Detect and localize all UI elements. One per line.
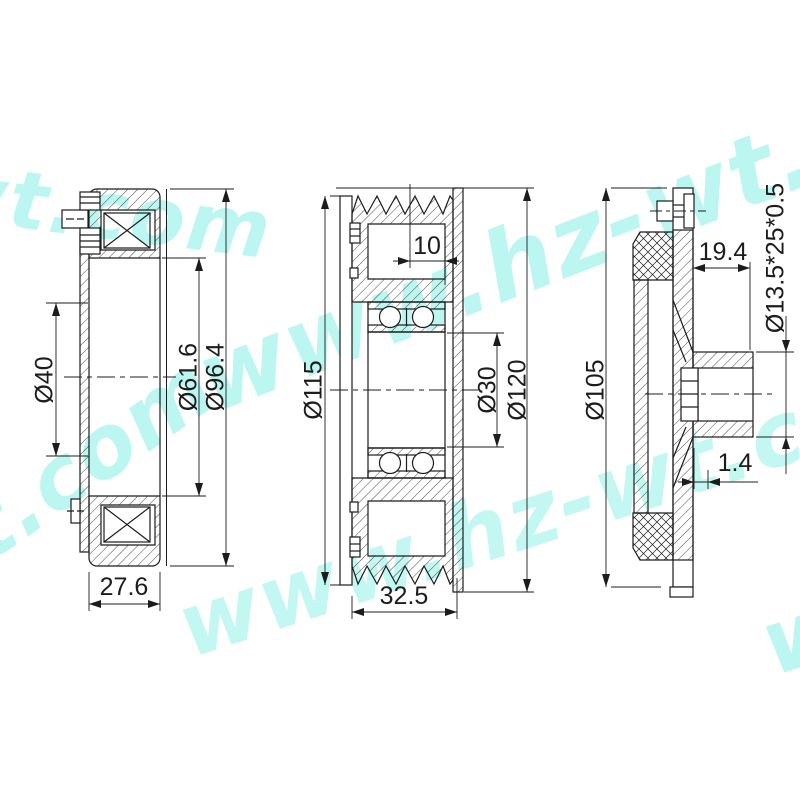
dim-label-spline: Ø13.5*25*0.5 xyxy=(762,183,790,333)
dim-label-1-4: 1.4 xyxy=(718,449,753,477)
bearing-top xyxy=(368,302,445,332)
dim-o40: Ø40 xyxy=(31,303,88,456)
dim-label-o40: Ø40 xyxy=(31,356,59,403)
rubber-damper-bottom xyxy=(633,513,673,560)
dim-label-32-5: 32.5 xyxy=(380,582,429,610)
dim-19-4: 19.4 xyxy=(693,230,750,350)
dim-32-5: 32.5 xyxy=(352,578,457,619)
pulley-dimensions: 10 Ø115 Ø30 Ø120 xyxy=(300,184,534,619)
technical-drawing: Ø40 Ø61.6 Ø96.4 27.6 xyxy=(0,0,800,800)
disc-rim-step xyxy=(670,587,693,597)
coil-winding-top xyxy=(104,213,150,248)
dim-label-o115: Ø115 xyxy=(300,360,328,419)
rubber-damper-top xyxy=(633,232,673,280)
dim-label-o61-6: Ø61.6 xyxy=(175,343,203,411)
coil-section-view xyxy=(62,189,176,566)
dim-label-o105: Ø105 xyxy=(582,359,610,420)
pulley-flange xyxy=(340,196,352,585)
dim-spline: Ø13.5*25*0.5 xyxy=(756,183,794,474)
dim-label-o120: Ø120 xyxy=(504,359,532,420)
dim-label-27-6: 27.6 xyxy=(100,573,149,601)
dim-label-10: 10 xyxy=(413,232,441,260)
spline-bore xyxy=(681,368,698,421)
dim-27-6: 27.6 xyxy=(89,572,160,611)
dim-label-19-4: 19.4 xyxy=(699,238,748,266)
pulley-section-view xyxy=(330,188,478,592)
dim-label-o96-4: Ø96.4 xyxy=(202,343,230,411)
coil-mount-plate xyxy=(80,234,89,552)
bearing-bottom xyxy=(368,448,445,478)
spring-plate xyxy=(634,280,648,513)
pulley-rim-bottom xyxy=(352,478,453,584)
dim-label-o30: Ø30 xyxy=(474,366,502,413)
coil-winding-bottom xyxy=(104,507,150,542)
hub-boss xyxy=(693,352,753,437)
drawing-canvas: www.hz-wt.com www.hz-wt.com www.hz-wt.co… xyxy=(0,0,800,800)
